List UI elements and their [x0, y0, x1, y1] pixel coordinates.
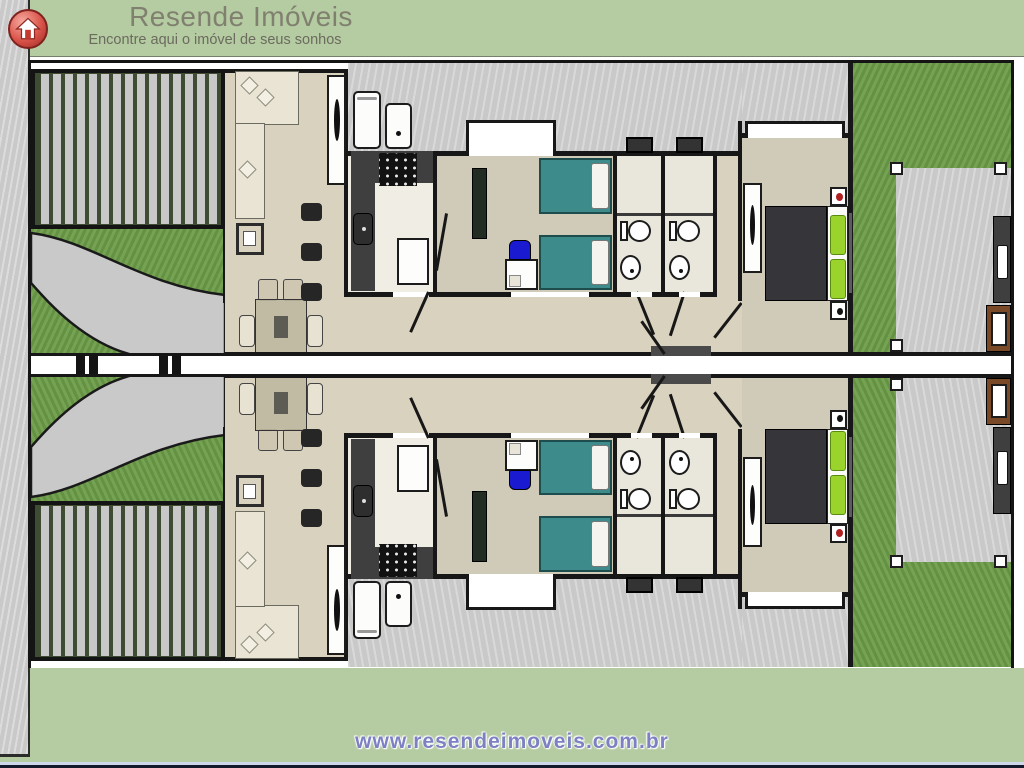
gate-post	[76, 354, 85, 376]
driveway-garden	[31, 229, 225, 356]
master-wardrobe	[743, 183, 762, 273]
east-window-strip	[849, 213, 852, 293]
stove-burners	[379, 153, 417, 186]
bed-pillow	[591, 445, 609, 490]
lime-pillow	[830, 475, 846, 515]
fridge-line	[357, 630, 377, 633]
nightstand	[830, 301, 847, 320]
bar-stool	[301, 509, 322, 527]
curved-driveway-path	[31, 374, 225, 501]
fridge	[353, 91, 381, 149]
dining-chair	[258, 429, 278, 451]
patio-post	[890, 162, 903, 175]
brand-block: Resende Imóveis Encontre aqui o imóvel d…	[55, 2, 375, 49]
sink-drain	[362, 227, 366, 231]
bar-stool	[301, 203, 322, 221]
single-bed	[539, 516, 612, 572]
desk-chair	[509, 240, 531, 260]
website-url[interactable]: www.resendeimoveis.com.br	[0, 730, 1024, 754]
bedroom-window	[466, 120, 556, 159]
wardrobe-handle	[750, 485, 755, 525]
bathroom-vent-window	[626, 577, 653, 593]
desk-drawer	[509, 275, 521, 287]
toilet-bowl	[628, 220, 651, 242]
dining-chair	[258, 279, 278, 301]
shower-divider	[665, 515, 713, 518]
east-window-strip	[849, 437, 852, 517]
lime-pillow	[830, 431, 846, 471]
outdoor-sink	[997, 245, 1008, 279]
bath-door-opening	[679, 292, 700, 297]
sink-drain	[630, 269, 634, 273]
desk	[505, 440, 538, 471]
desk	[505, 259, 538, 290]
kitchen-sink	[353, 485, 373, 517]
hallway-opening	[717, 433, 738, 438]
curved-driveway-path	[31, 229, 225, 356]
bed-pillow	[591, 240, 609, 285]
toilet-tank	[620, 489, 628, 509]
table-lamp	[243, 484, 256, 499]
shower-divider	[617, 213, 661, 216]
bathroom-vent-window	[626, 137, 653, 153]
sink-drain	[630, 457, 634, 461]
stove-burners	[379, 544, 417, 577]
bathroom-sink	[669, 255, 690, 280]
shower-divider	[617, 515, 661, 518]
carport-pergola	[31, 501, 225, 661]
patio-post	[890, 339, 903, 352]
outdoor-counter	[993, 216, 1011, 303]
dining-chair	[283, 279, 303, 301]
barbecue-grill	[986, 305, 1011, 352]
bathroom-vent-window	[676, 137, 703, 153]
pergola-slats	[37, 74, 219, 224]
nightstand	[830, 410, 847, 429]
bath-wall	[661, 433, 665, 574]
east-wall	[848, 63, 853, 352]
patio-post	[890, 378, 903, 391]
single-bed	[539, 158, 612, 214]
nightstand-lamp	[836, 193, 843, 201]
dining-chair	[283, 429, 303, 451]
master-wardrobe	[743, 457, 762, 547]
footer-banner: www.resendeimoveis.com.br	[0, 668, 1024, 768]
brand-title: Resende Imóveis	[55, 2, 375, 32]
bed-pillow	[591, 163, 609, 209]
nightstand	[830, 187, 847, 206]
cabinet	[327, 75, 346, 185]
bath-wall	[661, 156, 665, 297]
bedroom-door-opening	[509, 292, 591, 297]
sink-drain	[679, 269, 683, 273]
bath-door-opening	[631, 292, 652, 297]
brand-logo-house-icon	[8, 9, 48, 49]
bathroom-vent-window	[676, 577, 703, 593]
unit-bottom	[31, 374, 1011, 667]
table-centerpiece	[274, 392, 288, 414]
bedroom-wardrobe	[472, 168, 487, 239]
cooler-tap	[396, 594, 401, 599]
unit-top	[31, 63, 1011, 356]
dining-armchair	[307, 315, 323, 347]
driveway-garden	[31, 374, 225, 501]
kitchen-island	[397, 445, 429, 492]
kitchen-bedroom-wall	[433, 433, 437, 574]
wardrobe-handle	[750, 205, 755, 245]
toilet-tank	[669, 221, 677, 241]
nightstand	[830, 524, 847, 543]
water-cooler	[385, 581, 412, 627]
front-fence-line	[31, 374, 225, 377]
bath-wall	[613, 156, 617, 297]
toilet-bowl	[677, 220, 700, 242]
water-cooler	[385, 103, 412, 149]
house-arrow-icon	[15, 16, 41, 42]
house-unit	[31, 374, 1011, 667]
desk-chair	[509, 470, 531, 490]
sidewalk-strip	[0, 0, 30, 757]
header-banner: Resende Imóveis Encontre aqui o imóvel d…	[30, 0, 1024, 57]
shower-divider	[665, 213, 713, 216]
bar-stool	[301, 283, 322, 301]
bar-stool	[301, 429, 322, 447]
toilet-bowl	[677, 488, 700, 510]
lime-pillow	[830, 259, 846, 299]
barbecue-grill	[986, 378, 1011, 425]
east-wall	[848, 378, 853, 667]
carport-pergola	[31, 69, 225, 229]
dining-table	[255, 299, 307, 353]
single-bed	[539, 440, 612, 495]
table-centerpiece	[274, 316, 288, 338]
outdoor-sink	[997, 451, 1008, 485]
toilet-bowl	[628, 488, 651, 510]
brand-tagline: Encontre aqui o imóvel de seus sonhos	[55, 32, 375, 49]
dining-table	[255, 377, 307, 431]
patio-post	[994, 555, 1007, 568]
patio-post	[994, 162, 1007, 175]
desk-drawer	[509, 443, 521, 455]
kitchen-island	[397, 238, 429, 285]
sink-drain	[679, 457, 683, 461]
kitchen-door-opening	[393, 433, 429, 438]
toilet-tank	[620, 221, 628, 241]
single-bed	[539, 235, 612, 290]
grill-top	[991, 312, 1007, 346]
unit-boundary-wall	[225, 374, 1011, 378]
gate-post	[89, 354, 98, 376]
floor-plan	[28, 60, 1014, 668]
patio-post	[890, 555, 903, 568]
master-bed-duvet	[765, 206, 827, 301]
pergola-slats	[37, 506, 219, 656]
dining-armchair	[307, 383, 323, 415]
cabinet-handle	[334, 99, 340, 141]
bathroom-sink	[620, 255, 641, 280]
bar-stool	[301, 243, 322, 261]
bar-stool	[301, 469, 322, 487]
dining-armchair	[239, 315, 255, 347]
table-lamp	[243, 231, 256, 246]
house-unit	[31, 63, 1011, 356]
bathroom-sink	[620, 450, 641, 475]
kitchen-sink	[353, 213, 373, 245]
bedroom-wardrobe	[472, 491, 487, 562]
bath-wall	[613, 433, 617, 574]
sink-drain	[362, 499, 366, 503]
bedroom-door-opening	[509, 433, 591, 438]
cabinet	[327, 545, 346, 655]
bedroom-window	[466, 571, 556, 610]
bath-door-opening	[631, 433, 652, 438]
fridge-line	[357, 97, 377, 100]
fridge	[353, 581, 381, 639]
nightstand-lamp	[836, 529, 843, 537]
toilet-tank	[669, 489, 677, 509]
nightstand-lamp	[837, 415, 843, 422]
property-divider	[31, 356, 1011, 374]
lime-pillow	[830, 215, 846, 255]
dining-armchair	[239, 383, 255, 415]
kitchen-bedroom-wall	[433, 156, 437, 297]
gate-post	[172, 354, 181, 376]
bathroom-sink	[669, 450, 690, 475]
gate-post	[159, 354, 168, 376]
hallway-opening	[717, 292, 738, 297]
bath-door-opening	[679, 433, 700, 438]
bed-pillow	[591, 521, 609, 567]
cooler-tap	[396, 131, 401, 136]
master-bed-duvet	[765, 429, 827, 524]
cabinet-handle	[334, 589, 340, 631]
side-table	[236, 475, 264, 507]
grill-top	[991, 384, 1007, 418]
outdoor-counter	[993, 427, 1011, 514]
side-table	[236, 223, 264, 255]
nightstand-lamp	[837, 308, 843, 315]
